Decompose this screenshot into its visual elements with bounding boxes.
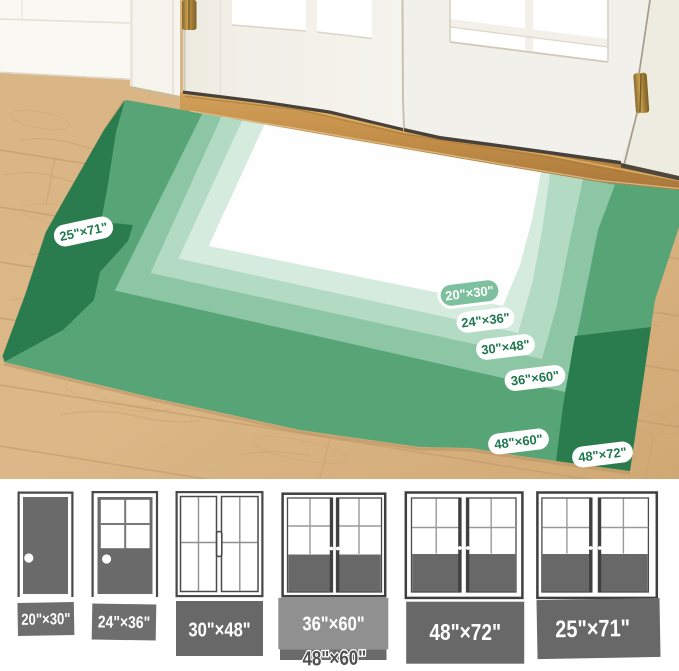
svg-text:48"×60": 48"×60" [302, 646, 366, 670]
svg-text:48"×72": 48"×72" [429, 621, 501, 646]
svg-text:20"×30": 20"×30" [21, 611, 71, 629]
svg-text:36"×60": 36"×60" [302, 612, 364, 635]
svg-text:24"×36": 24"×36" [98, 613, 151, 633]
svg-text:30"×48": 30"×48" [188, 618, 250, 641]
svg-text:25"×71": 25"×71" [555, 614, 630, 643]
